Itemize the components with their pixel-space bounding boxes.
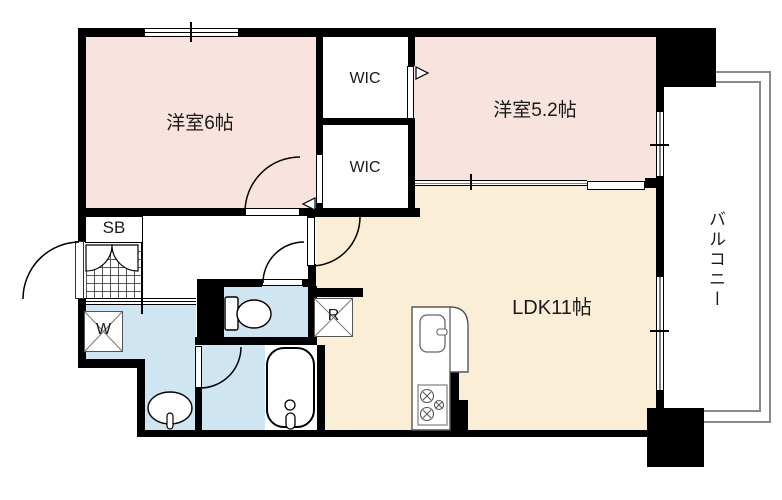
wic-top-label: WIC xyxy=(325,70,405,88)
wic-top-door-arrow-icon xyxy=(416,67,428,79)
refrigerator-label: R xyxy=(314,307,353,325)
kitchen-faucet-icon xyxy=(437,329,447,335)
entrance-door-arc xyxy=(23,242,79,299)
bedroom6-door-arc xyxy=(245,157,300,212)
balcony-label: バルコニー xyxy=(703,180,728,340)
bedroom6-label: 洋室6帖 xyxy=(130,108,270,135)
washbasin-fixture xyxy=(148,392,192,429)
ldk-label: LDK11帖 xyxy=(472,291,632,320)
floor-plan: 洋室6帖 洋室5.2帖 LDK11帖 WIC WIC バルコニー SB W R xyxy=(0,0,782,500)
wic-bottom-door-arrow-icon xyxy=(303,198,315,210)
genkan-cabinet-arc-left xyxy=(86,245,112,271)
bathroom-door-arc xyxy=(200,347,241,388)
genkan-cabinet-arc-right xyxy=(112,245,138,271)
kitchen-counter xyxy=(412,307,468,430)
wic-bottom-label: WIC xyxy=(325,159,405,177)
bathtub-fixture xyxy=(267,348,314,429)
ldk-door-arc xyxy=(311,217,360,266)
toilet-door-arc xyxy=(263,242,304,283)
toilet-fixture xyxy=(225,297,271,330)
washing-machine-label: W xyxy=(84,321,123,339)
kitchen-stove xyxy=(418,385,447,425)
shoe-box-label: SB xyxy=(88,218,140,238)
bedroom52-label: 洋室5.2帖 xyxy=(455,95,615,122)
